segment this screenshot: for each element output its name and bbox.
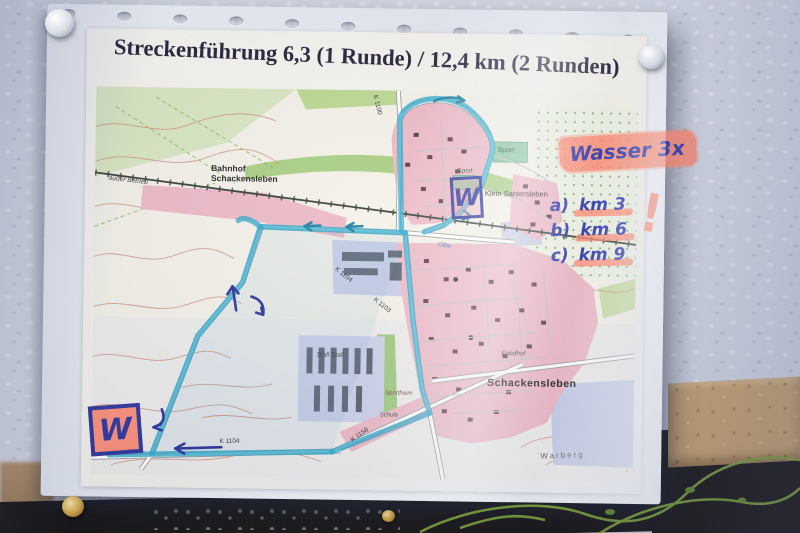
photo-of-route-map: Streckenführung 6,3 (1 Runde) / 12,4 km … <box>0 0 800 533</box>
exclamation-mark: ! <box>635 181 667 246</box>
km-list-row: c)km 9 <box>551 244 631 266</box>
km-prefix: a) <box>550 196 570 216</box>
map-graphic <box>91 86 638 482</box>
gold-pushpin-bottom-middle <box>382 510 395 522</box>
wooden-board <box>668 377 800 468</box>
km-value: km 3 <box>576 194 629 215</box>
map-printout: Streckenführung 6,3 (1 Runde) / 12,4 km … <box>81 28 647 494</box>
sleeve-hole <box>285 19 299 28</box>
gold-pushpin-bottom-left <box>62 496 84 517</box>
sleeve-hole <box>341 22 355 31</box>
lace-curtain <box>150 506 400 530</box>
km-value: km 6 <box>577 219 630 240</box>
km-prefix: b) <box>550 221 570 241</box>
water-station-marker-top: W <box>450 176 484 220</box>
km-value: km 9 <box>575 245 628 266</box>
white-pushpin-top-right <box>639 45 664 69</box>
white-pushpin-top-left <box>45 9 74 37</box>
km-list-row: a)km 3 <box>550 194 630 216</box>
topographic-map: Bahnhof Schackenslebenaußer BetriebKlein… <box>91 86 638 482</box>
km-list: a)km 3b)km 6c)km 9 <box>550 194 631 271</box>
km-list-row: b)km 6 <box>550 219 630 241</box>
sleeve-hole <box>229 17 243 26</box>
km-prefix: c) <box>551 246 569 266</box>
sleeve-hole <box>117 11 131 20</box>
water-station-marker-bottom: W <box>88 403 144 457</box>
sleeve-hole <box>173 14 187 23</box>
route-title: Streckenführung 6,3 (1 Runde) / 12,4 km … <box>86 33 647 81</box>
plastic-sleeve: Streckenführung 6,3 (1 Runde) / 12,4 km … <box>41 4 668 505</box>
